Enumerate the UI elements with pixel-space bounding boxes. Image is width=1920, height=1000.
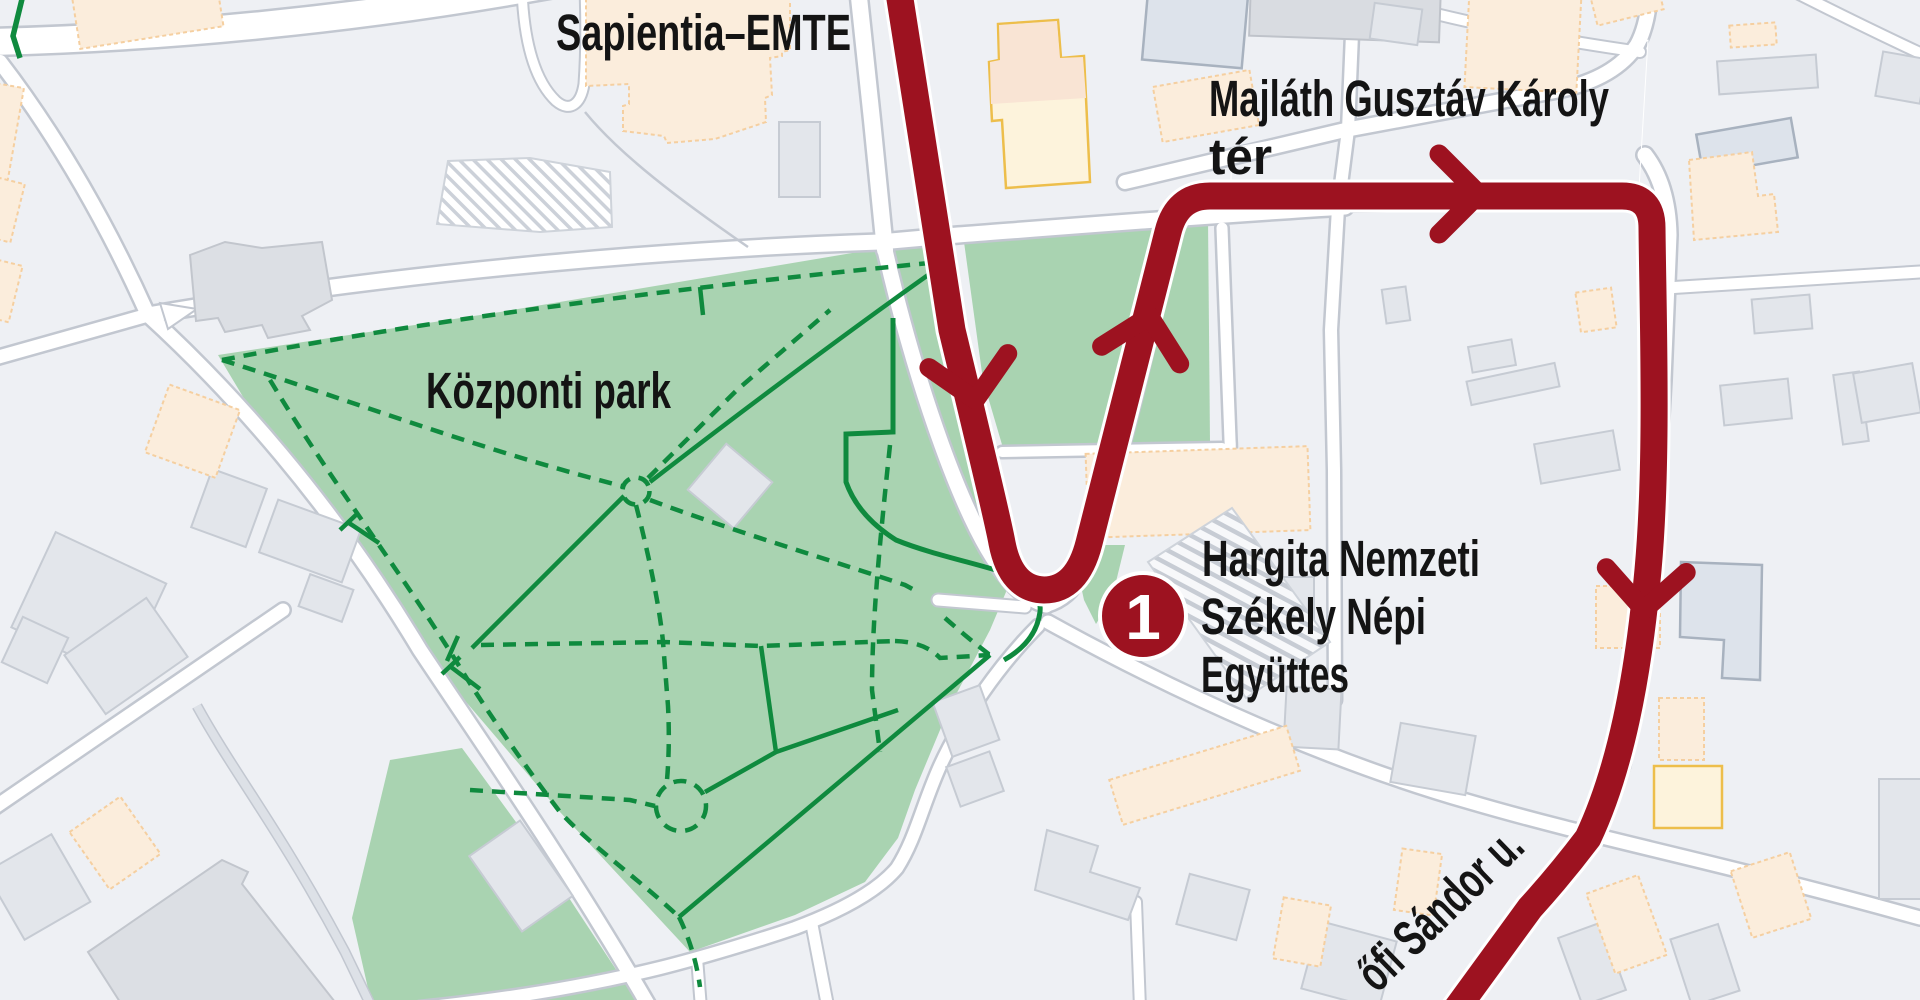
svg-text:Majláth Gusztáv Károly: Majláth Gusztáv Károly xyxy=(1209,70,1609,127)
svg-text:Sapientia–EMTE: Sapientia–EMTE xyxy=(556,4,851,61)
svg-text:1: 1 xyxy=(1125,581,1161,653)
svg-text:Hargita Nemzeti: Hargita Nemzeti xyxy=(1202,530,1480,587)
svg-text:Központi park: Központi park xyxy=(426,362,671,419)
svg-text:tér: tér xyxy=(1209,128,1272,185)
svg-text:Együttes: Együttes xyxy=(1201,646,1349,703)
svg-text:Székely Népi: Székely Népi xyxy=(1201,588,1426,645)
